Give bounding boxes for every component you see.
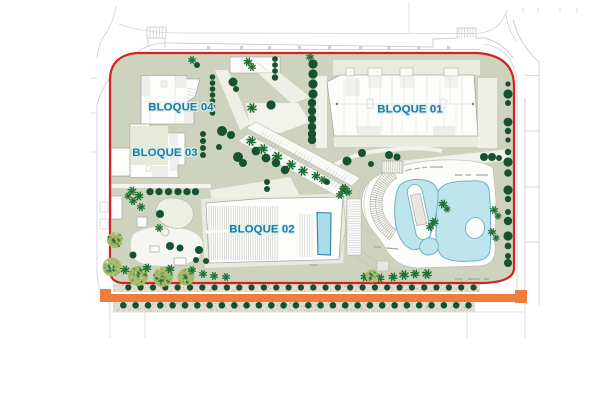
- svg-text:BLOQUE 01: BLOQUE 01: [377, 104, 443, 116]
- svg-text:BLOQUE 03: BLOQUE 03: [132, 147, 197, 159]
- svg-text:BLOQUE 02: BLOQUE 02: [229, 224, 294, 236]
- svg-text:BLOQUE 04: BLOQUE 04: [148, 102, 214, 114]
